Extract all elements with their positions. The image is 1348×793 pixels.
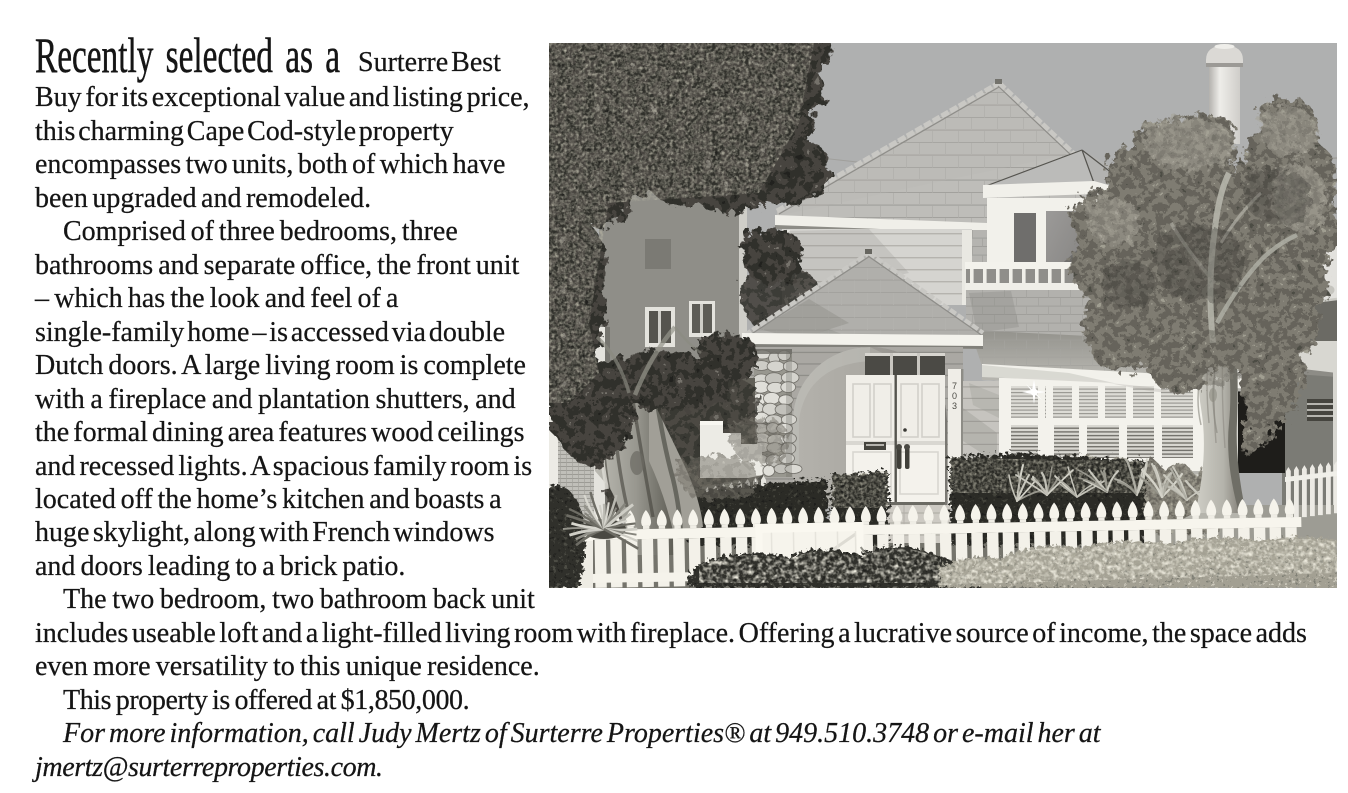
svg-text:0: 0 — [952, 391, 957, 401]
svg-text:7: 7 — [952, 381, 957, 391]
svg-text:3: 3 — [952, 401, 957, 411]
